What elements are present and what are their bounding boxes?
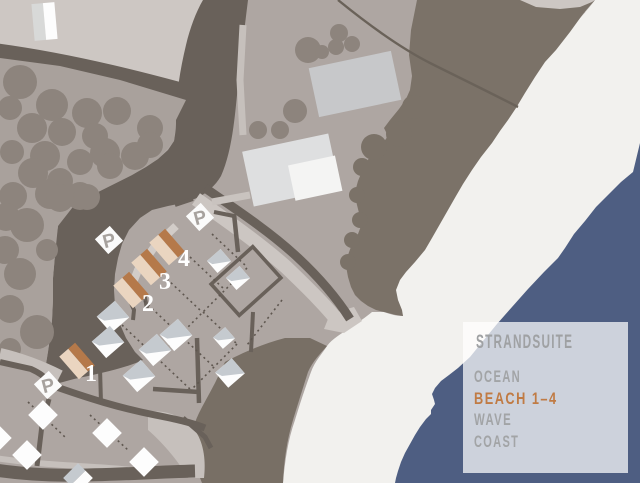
svg-text:STRANDSUITE: STRANDSUITE bbox=[476, 331, 573, 353]
svg-text:COAST: COAST bbox=[474, 433, 519, 452]
svg-text:4: 4 bbox=[178, 246, 190, 272]
svg-text:OCEAN: OCEAN bbox=[474, 368, 521, 387]
svg-text:WAVE: WAVE bbox=[474, 411, 512, 430]
svg-text:3: 3 bbox=[159, 269, 171, 295]
svg-text:2: 2 bbox=[142, 291, 154, 317]
svg-text:1: 1 bbox=[85, 361, 97, 387]
svg-text:BEACH 1–4: BEACH 1–4 bbox=[474, 389, 558, 408]
